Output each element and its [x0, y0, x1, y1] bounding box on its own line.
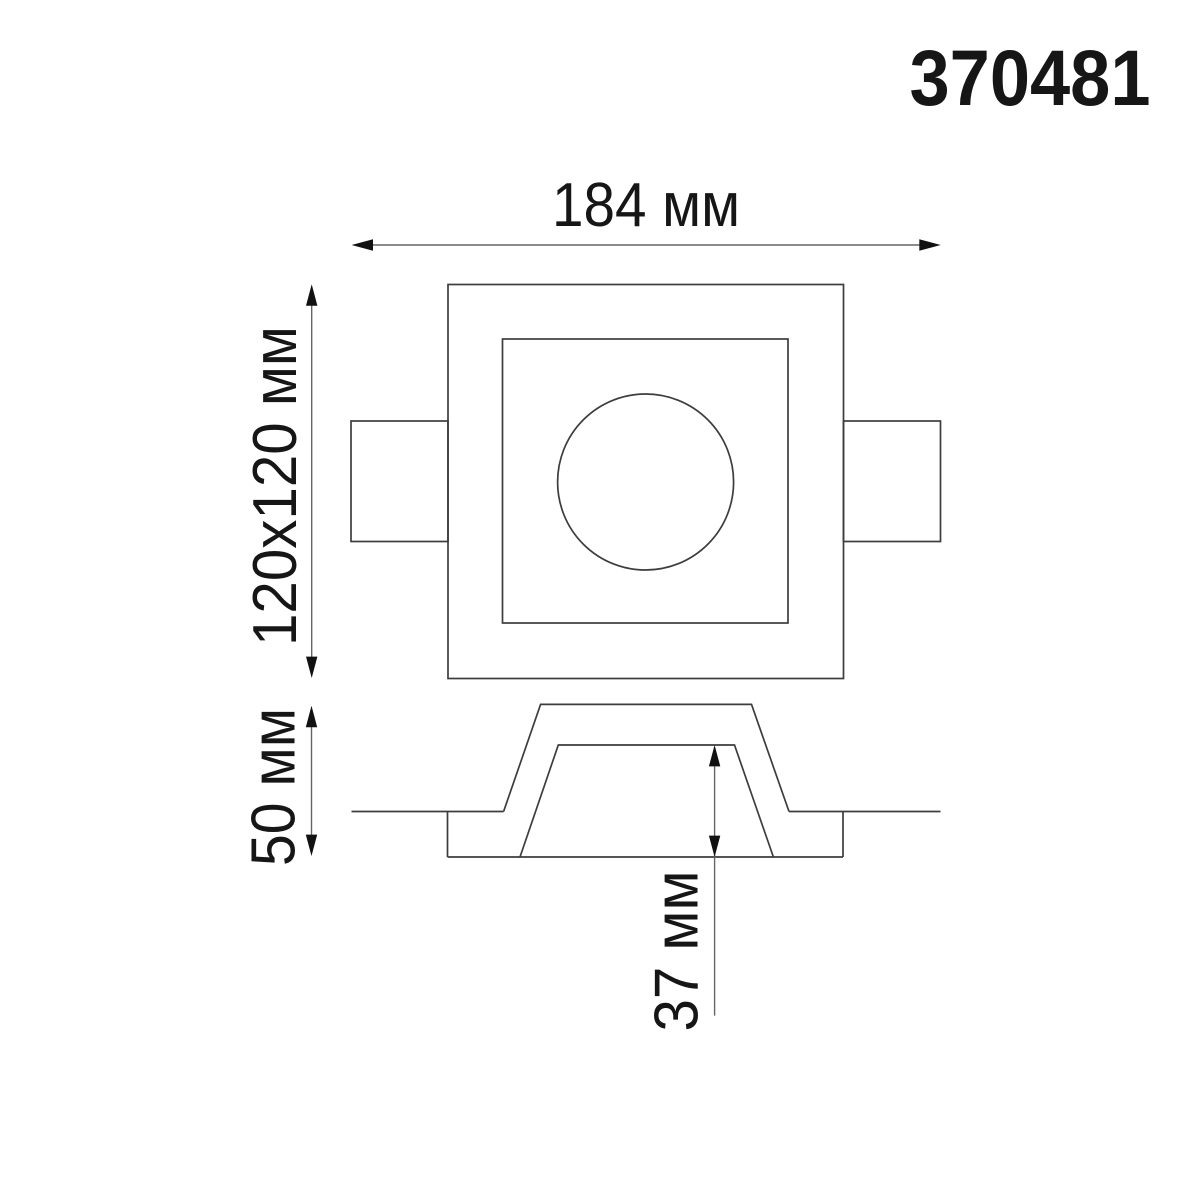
svg-text:37 мм: 37 мм [643, 871, 712, 1032]
svg-text:50 мм: 50 мм [240, 708, 309, 866]
svg-text:370481: 370481 [910, 33, 1151, 122]
svg-text:184 мм: 184 мм [552, 171, 740, 240]
svg-text:120x120 мм: 120x120 мм [241, 326, 310, 646]
